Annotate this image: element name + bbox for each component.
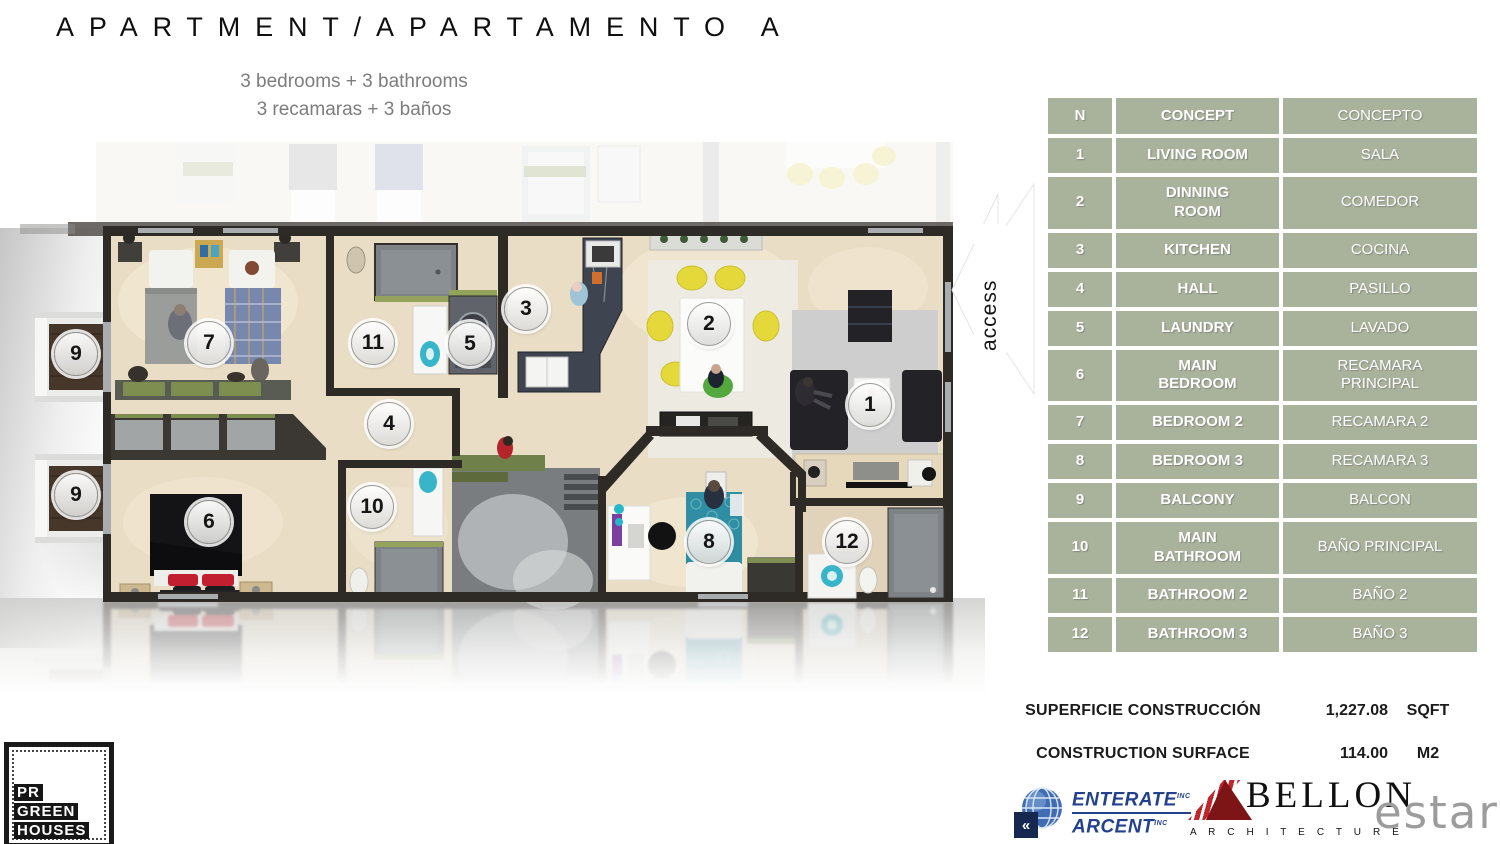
legend-row: 7BEDROOM 2RECAMARA 2 (1048, 405, 1477, 440)
subtitle: 3 bedrooms + 3 bathrooms 3 recamaras + 3… (168, 68, 540, 124)
access-label: access (974, 224, 1006, 406)
legend-header-cell: CONCEPT (1116, 98, 1279, 134)
surface-row: SUPERFICIE CONSTRUCCIÓN1,227.08SQFT (1018, 702, 1478, 720)
pr-logo-line: HOUSES (14, 822, 89, 839)
legend-cell: 4 (1048, 272, 1112, 307)
surface-unit: SQFT (1388, 702, 1468, 720)
legend-cell: BALCONY (1116, 483, 1279, 518)
plan-marker-8: 8 (687, 520, 731, 564)
legend-row: 6MAIN BEDROOMRECAMARA PRINCIPAL (1048, 350, 1477, 402)
legend-row: 1LIVING ROOMSALA (1048, 138, 1477, 173)
legend-cell: MAIN BATHROOM (1116, 522, 1279, 574)
legend-header: NCONCEPTCONCEPTO (1048, 98, 1477, 134)
legend-cell: 2 (1048, 177, 1112, 229)
subtitle-english: 3 bedrooms + 3 bathrooms (168, 68, 540, 96)
legend-cell: BEDROOM 3 (1116, 444, 1279, 479)
legend-cell: BEDROOM 2 (1116, 405, 1279, 440)
arcent-word: ARCENT (1072, 816, 1154, 837)
legend-cell: 1 (1048, 138, 1112, 173)
surface-row: CONSTRUCTION SURFACE114.00M2 (1018, 745, 1478, 763)
slide: APARTMENT/APARTAMENTO A 3 bedrooms + 3 b… (0, 0, 1500, 844)
legend-row: 4HALLPASILLO (1048, 272, 1477, 307)
plan-marker-1: 1 (848, 383, 892, 427)
legend-header-cell: CONCEPTO (1283, 98, 1477, 134)
legend-cell: COCINA (1283, 233, 1477, 268)
enterate-arcent-logo: « ENTERATEINC ARCENTINC (1012, 782, 1191, 842)
plan-marker-9: 9 (54, 473, 98, 517)
legend-cell: LIVING ROOM (1116, 138, 1279, 173)
legend-cell: BATHROOM 2 (1116, 578, 1279, 613)
page-title: APARTMENT/APARTAMENTO A (56, 12, 794, 43)
plan-marker-4: 4 (367, 402, 411, 446)
inc-suffix: INC (1154, 820, 1168, 827)
legend-cell: 9 (1048, 483, 1112, 518)
pr-logo-line: GREEN (14, 803, 78, 820)
legend-row: 5LAUNDRYLAVADO (1048, 311, 1477, 346)
legend-row: 11BATHROOM 2BAÑO 2 (1048, 578, 1477, 613)
legend-cell: HALL (1116, 272, 1279, 307)
legend-cell: BALCON (1283, 483, 1477, 518)
legend-cell: 12 (1048, 617, 1112, 652)
legend-cell: 11 (1048, 578, 1112, 613)
legend-cell: 7 (1048, 405, 1112, 440)
plan-marker-3: 3 (504, 287, 548, 331)
legend-cell: BAÑO 3 (1283, 617, 1477, 652)
bellon-architecture-logo: BELLON A R C H I T E C T U R E (1188, 778, 1370, 838)
legend-row: 3KITCHENCOCINA (1048, 233, 1477, 268)
legend-cell: BAÑO PRINCIPAL (1283, 522, 1477, 574)
estar-logo: estar (1374, 786, 1499, 839)
surface-value: 1,227.08 (1268, 702, 1388, 720)
arcent-square-icon: « (1014, 812, 1038, 838)
legend-row: 9BALCONYBALCON (1048, 483, 1477, 518)
bellon-roof-icon (1188, 780, 1252, 820)
legend-header-row: NCONCEPTCONCEPTO (1048, 98, 1477, 134)
plan-marker-11: 11 (351, 321, 395, 365)
legend-row: 2DINNING ROOMCOMEDOR (1048, 177, 1477, 229)
plan-marker-5: 5 (448, 322, 492, 366)
surface-value: 114.00 (1268, 745, 1388, 763)
enterate-word: ENTERATE (1072, 790, 1177, 811)
legend-cell: 6 (1048, 350, 1112, 402)
legend-cell: DINNING ROOM (1116, 177, 1279, 229)
plan-marker-12: 12 (825, 520, 869, 564)
legend-row: 12BATHROOM 3BAÑO 3 (1048, 617, 1477, 652)
legend-table: NCONCEPTCONCEPTO 1LIVING ROOMSALA2DINNIN… (1044, 94, 1481, 656)
plan-marker-6: 6 (187, 500, 231, 544)
floor-plan (8, 142, 963, 692)
legend-cell: BAÑO 2 (1283, 578, 1477, 613)
subtitle-spanish: 3 recamaras + 3 baños (168, 96, 540, 124)
plan-marker-7: 7 (187, 321, 231, 365)
legend-cell: LAVADO (1283, 311, 1477, 346)
legend-cell: KITCHEN (1116, 233, 1279, 268)
legend-cell: 5 (1048, 311, 1112, 346)
legend-row: 8BEDROOM 3RECAMARA 3 (1048, 444, 1477, 479)
legend-cell: SALA (1283, 138, 1477, 173)
legend-cell: BATHROOM 3 (1116, 617, 1279, 652)
surface-label: SUPERFICIE CONSTRUCCIÓN (1018, 702, 1268, 720)
legend-cell: 3 (1048, 233, 1112, 268)
legend-cell: RECAMARA PRINCIPAL (1283, 350, 1477, 402)
legend-cell: 8 (1048, 444, 1112, 479)
legend-cell: 10 (1048, 522, 1112, 574)
plan-marker-2: 2 (687, 302, 731, 346)
surface-unit: M2 (1388, 745, 1468, 763)
legend-cell: LAUNDRY (1116, 311, 1279, 346)
pr-green-houses-logo: PR GREEN HOUSES (4, 742, 114, 844)
legend-body: 1LIVING ROOMSALA2DINNING ROOMCOMEDOR3KIT… (1048, 138, 1477, 652)
legend-cell: COMEDOR (1283, 177, 1477, 229)
legend-cell: MAIN BEDROOM (1116, 350, 1279, 402)
pr-logo-line: PR (14, 784, 43, 801)
bellon-subtitle: A R C H I T E C T U R E (1190, 827, 1403, 838)
legend-row: 10MAIN BATHROOMBAÑO PRINCIPAL (1048, 522, 1477, 574)
plan-marker-10: 10 (350, 485, 394, 529)
legend-cell: RECAMARA 2 (1283, 405, 1477, 440)
surface-label: CONSTRUCTION SURFACE (1018, 745, 1268, 763)
plan-marker-9: 9 (54, 332, 98, 376)
legend-cell: PASILLO (1283, 272, 1477, 307)
legend-cell: RECAMARA 3 (1283, 444, 1477, 479)
access-arrow: access (948, 172, 1038, 406)
legend-header-cell: N (1048, 98, 1112, 134)
